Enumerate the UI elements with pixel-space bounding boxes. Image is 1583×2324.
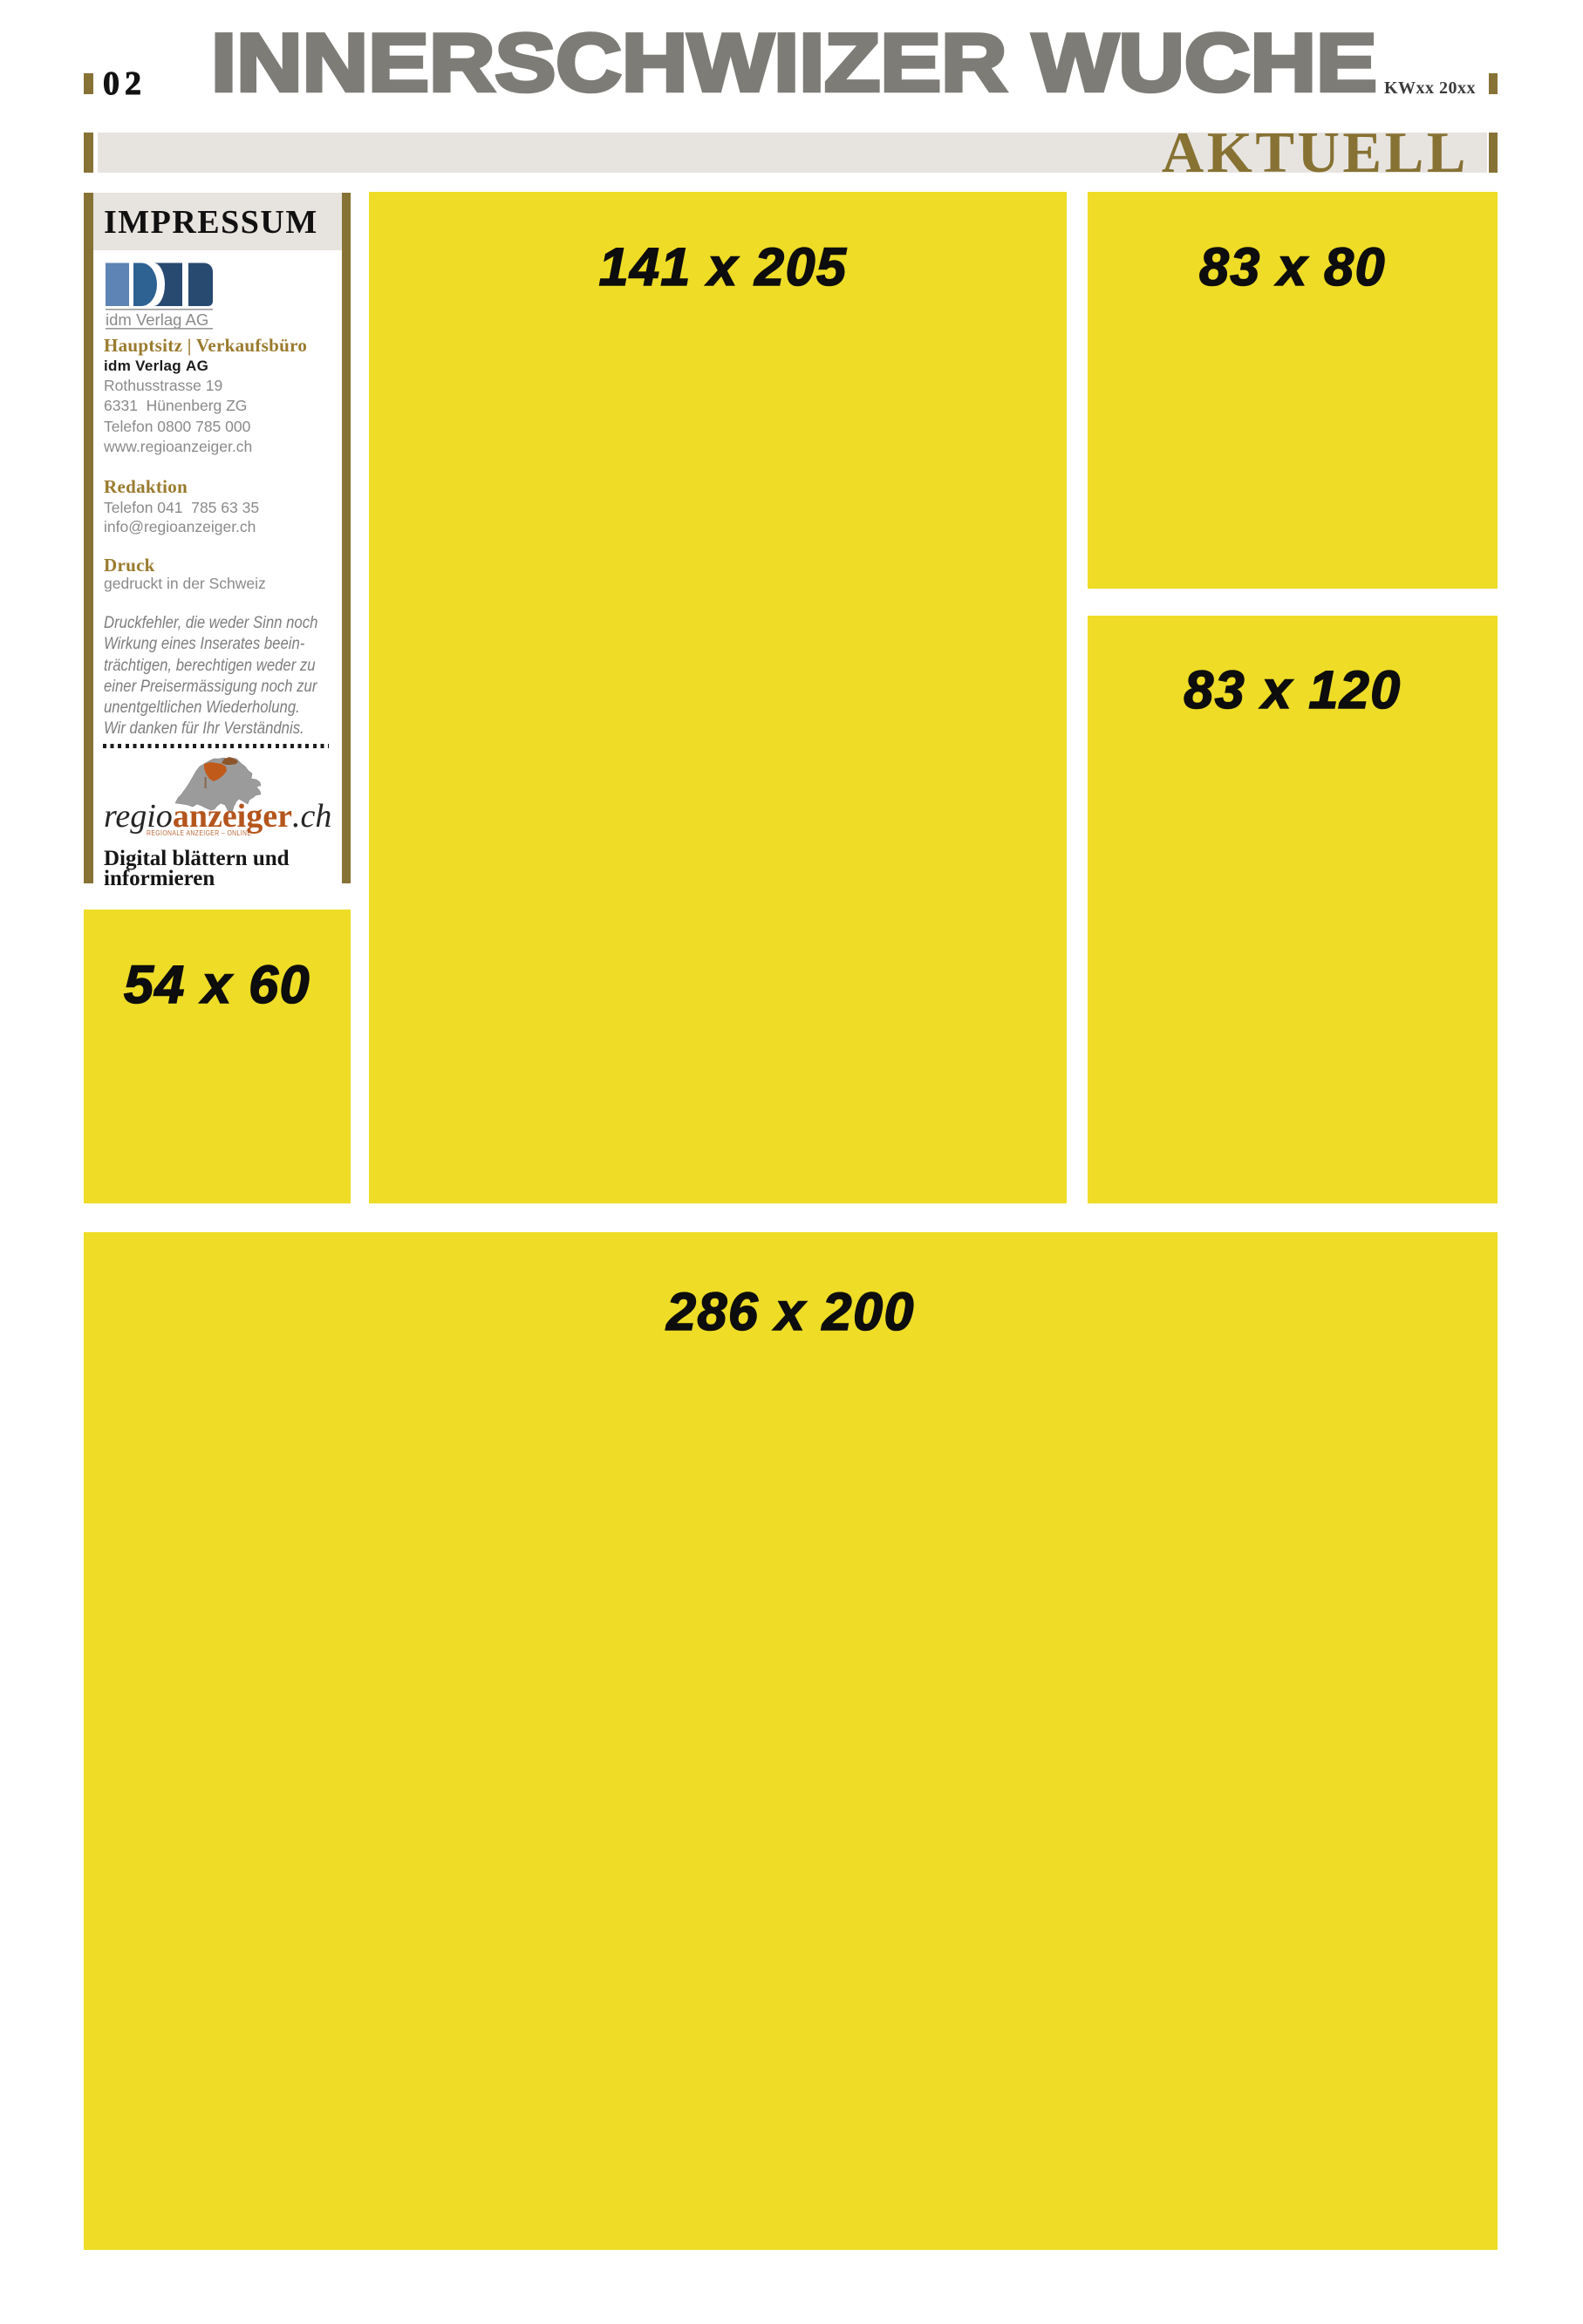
svg-text:idm Verlag AG: idm Verlag AG: [106, 310, 208, 329]
